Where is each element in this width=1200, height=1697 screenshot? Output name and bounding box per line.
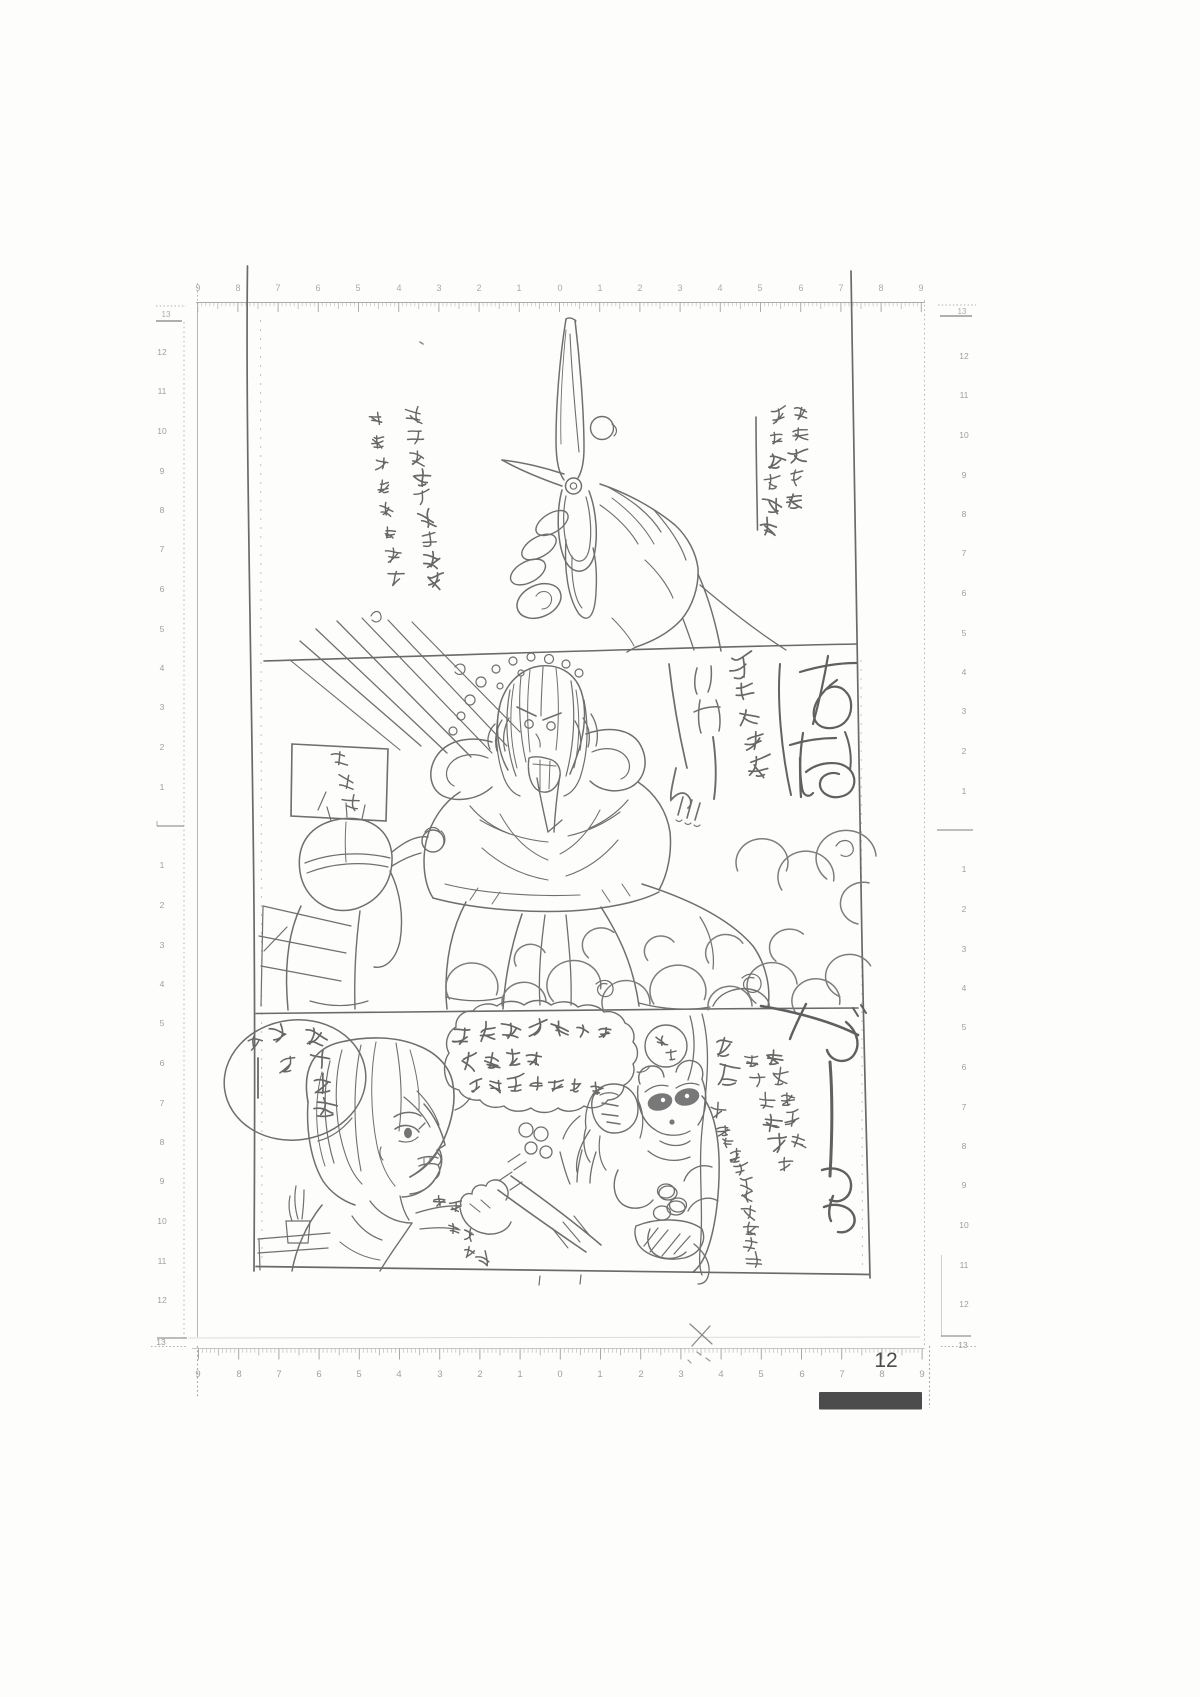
svg-text:6: 6 — [316, 1369, 321, 1380]
svg-text:0: 0 — [557, 1369, 562, 1380]
svg-text:1: 1 — [962, 864, 967, 874]
svg-text:3: 3 — [437, 1369, 442, 1380]
svg-text:7: 7 — [962, 1102, 967, 1112]
svg-text:11: 11 — [158, 386, 167, 396]
svg-text:12: 12 — [874, 1349, 897, 1372]
svg-text:6: 6 — [798, 283, 803, 293]
svg-text:11: 11 — [158, 1256, 167, 1266]
svg-text:5: 5 — [355, 283, 360, 293]
svg-text:4: 4 — [396, 283, 401, 293]
svg-text:6: 6 — [962, 588, 967, 598]
svg-text:7: 7 — [276, 1369, 281, 1380]
svg-text:4: 4 — [396, 1369, 401, 1380]
svg-text:1: 1 — [160, 782, 165, 792]
svg-text:12: 12 — [157, 347, 167, 357]
svg-text:2: 2 — [477, 1369, 482, 1380]
svg-text:6: 6 — [160, 584, 165, 594]
svg-text:1: 1 — [597, 1369, 602, 1380]
svg-text:8: 8 — [962, 1141, 967, 1151]
svg-text:1: 1 — [517, 1369, 522, 1380]
svg-text:8: 8 — [962, 509, 967, 519]
svg-text:4: 4 — [962, 667, 967, 677]
svg-text:4: 4 — [160, 979, 165, 989]
svg-text:2: 2 — [160, 900, 165, 910]
svg-text:5: 5 — [758, 1369, 763, 1380]
svg-text:3: 3 — [160, 702, 165, 712]
svg-text:6: 6 — [315, 283, 320, 293]
svg-text:0: 0 — [557, 283, 562, 293]
svg-text:3: 3 — [962, 706, 967, 716]
svg-text:7: 7 — [160, 1098, 165, 1108]
svg-text:5: 5 — [757, 283, 762, 293]
svg-text:9: 9 — [919, 1369, 924, 1380]
svg-text:10: 10 — [959, 1220, 969, 1230]
svg-text:9: 9 — [962, 470, 967, 480]
svg-text:9: 9 — [160, 466, 165, 476]
svg-text:7: 7 — [838, 283, 843, 293]
svg-text:3: 3 — [677, 283, 682, 293]
svg-text:4: 4 — [718, 1369, 723, 1380]
svg-text:9: 9 — [160, 1176, 165, 1186]
svg-text:5: 5 — [962, 628, 967, 638]
svg-text:8: 8 — [235, 283, 240, 293]
svg-text:9: 9 — [918, 283, 923, 293]
svg-text:5: 5 — [356, 1369, 361, 1380]
svg-text:12: 12 — [959, 1299, 969, 1309]
svg-text:13: 13 — [162, 310, 171, 319]
svg-text:2: 2 — [962, 904, 967, 914]
svg-text:2: 2 — [476, 283, 481, 293]
svg-text:6: 6 — [160, 1058, 165, 1068]
svg-text:12: 12 — [157, 1295, 167, 1305]
svg-text:5: 5 — [160, 1018, 165, 1028]
svg-text:5: 5 — [962, 1022, 967, 1032]
svg-text:6: 6 — [962, 1062, 967, 1072]
svg-text:3: 3 — [962, 944, 967, 954]
svg-text:7: 7 — [160, 544, 165, 554]
svg-text:8: 8 — [878, 283, 883, 293]
svg-text:11: 11 — [960, 1260, 969, 1270]
svg-text:8: 8 — [160, 1137, 165, 1147]
svg-text:1: 1 — [597, 283, 602, 293]
svg-text:13: 13 — [958, 1340, 968, 1350]
svg-text:3: 3 — [436, 283, 441, 293]
svg-text:4: 4 — [962, 983, 967, 993]
svg-text:8: 8 — [160, 505, 165, 515]
svg-text:7: 7 — [839, 1369, 844, 1380]
svg-text:6: 6 — [799, 1369, 804, 1380]
svg-text:8: 8 — [236, 1369, 241, 1380]
svg-text:3: 3 — [160, 940, 165, 950]
svg-text:12: 12 — [959, 351, 969, 361]
svg-text:4: 4 — [160, 663, 165, 673]
svg-text:9: 9 — [962, 1180, 967, 1190]
svg-text:2: 2 — [637, 283, 642, 293]
svg-text:7: 7 — [962, 548, 967, 558]
svg-text:1: 1 — [962, 786, 967, 796]
svg-text:3: 3 — [678, 1369, 683, 1380]
svg-text:10: 10 — [157, 426, 167, 436]
svg-text:4: 4 — [717, 283, 722, 293]
svg-text:7: 7 — [275, 283, 280, 293]
svg-text:11: 11 — [960, 390, 969, 400]
svg-text:5: 5 — [160, 624, 165, 634]
svg-text:1: 1 — [160, 860, 165, 870]
svg-text:2: 2 — [962, 746, 967, 756]
svg-text:10: 10 — [157, 1216, 167, 1226]
svg-text:2: 2 — [160, 742, 165, 752]
svg-text:2: 2 — [638, 1369, 643, 1380]
svg-text:1: 1 — [516, 283, 521, 293]
svg-text:13: 13 — [958, 307, 967, 316]
svg-text:10: 10 — [959, 430, 969, 440]
